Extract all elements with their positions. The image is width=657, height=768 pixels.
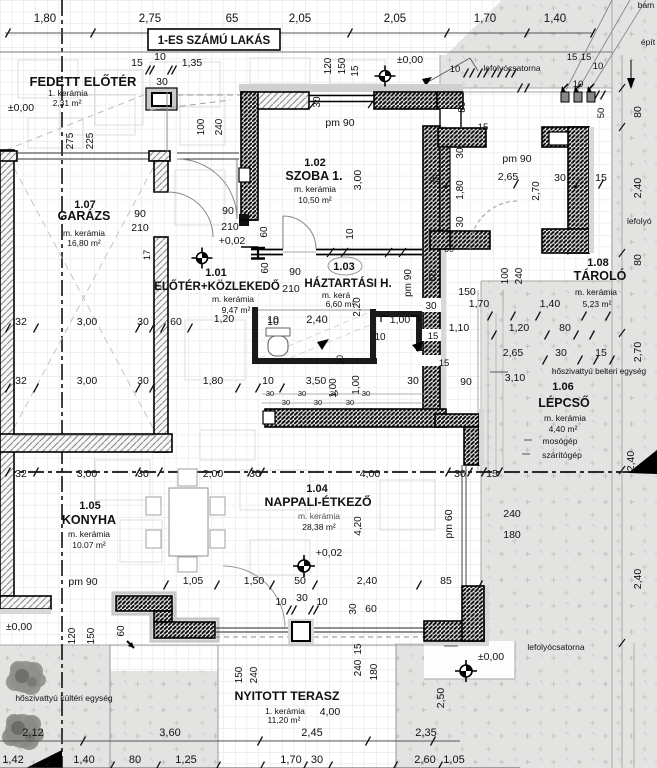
svg-text:10: 10 xyxy=(450,64,461,75)
svg-text:3,10: 3,10 xyxy=(505,372,526,384)
svg-text:210: 210 xyxy=(221,221,239,233)
svg-text:90: 90 xyxy=(289,266,301,278)
svg-text:mosógép: mosógép xyxy=(543,436,578,446)
svg-text:15: 15 xyxy=(439,358,450,369)
svg-text:2,40: 2,40 xyxy=(632,178,644,199)
svg-text:1,80: 1,80 xyxy=(34,13,56,25)
svg-text:1,80: 1,80 xyxy=(203,375,224,387)
svg-text:hőszivattyú kültéri egység: hőszivattyú kültéri egység xyxy=(15,693,113,703)
svg-text:3,00: 3,00 xyxy=(77,468,98,480)
svg-text:lefolyó: lefolyó xyxy=(627,216,652,226)
svg-text:1.08: 1.08 xyxy=(587,257,608,269)
svg-text:1,00: 1,00 xyxy=(390,314,411,326)
svg-text:30: 30 xyxy=(454,468,466,480)
svg-text:240: 240 xyxy=(353,659,364,676)
svg-text:80: 80 xyxy=(457,101,468,113)
svg-text:15: 15 xyxy=(486,468,498,480)
svg-text:+0,02: +0,02 xyxy=(316,547,343,559)
svg-text:60: 60 xyxy=(428,270,439,282)
svg-text:1,70: 1,70 xyxy=(474,13,496,25)
svg-text:30: 30 xyxy=(455,216,466,228)
svg-text:2,05: 2,05 xyxy=(289,13,311,25)
svg-text:240: 240 xyxy=(514,267,525,284)
svg-text:90: 90 xyxy=(460,376,472,388)
svg-text:30: 30 xyxy=(346,398,354,407)
svg-text:3,50: 3,50 xyxy=(306,375,327,387)
svg-text:65: 65 xyxy=(226,13,239,25)
svg-text:2,31 m²: 2,31 m² xyxy=(53,98,82,108)
svg-text:90: 90 xyxy=(222,205,234,217)
svg-text:15: 15 xyxy=(581,52,592,63)
svg-text:15: 15 xyxy=(353,643,364,655)
svg-text:lefolyócsatorna: lefolyócsatorna xyxy=(483,63,540,73)
svg-text:2,35: 2,35 xyxy=(415,727,436,739)
svg-text:1,42: 1,42 xyxy=(2,754,23,766)
svg-text:17: 17 xyxy=(142,250,153,261)
svg-text:150: 150 xyxy=(458,286,476,298)
svg-text:30: 30 xyxy=(362,389,370,398)
svg-text:1,40: 1,40 xyxy=(544,13,566,25)
svg-text:2,60: 2,60 xyxy=(414,754,435,766)
svg-text:2,12: 2,12 xyxy=(22,727,43,739)
svg-text:60: 60 xyxy=(260,262,271,274)
svg-text:80: 80 xyxy=(559,322,571,334)
svg-text:2,05: 2,05 xyxy=(384,13,406,25)
svg-text:30: 30 xyxy=(156,76,168,88)
svg-text:2,00: 2,00 xyxy=(203,468,224,480)
svg-text:KONYHA: KONYHA xyxy=(62,513,116,527)
svg-text:3,60: 3,60 xyxy=(159,727,180,739)
svg-text:10: 10 xyxy=(154,51,166,63)
svg-text:30: 30 xyxy=(312,96,323,108)
svg-text:30: 30 xyxy=(330,389,338,398)
svg-text:1,50: 1,50 xyxy=(244,575,265,587)
svg-text:50: 50 xyxy=(294,575,306,587)
svg-text:szárítógép: szárítógép xyxy=(542,450,582,460)
svg-text:80: 80 xyxy=(632,106,644,118)
svg-text:m. kerámia: m. kerámia xyxy=(63,228,105,238)
svg-text:28,38 m²: 28,38 m² xyxy=(302,522,336,532)
svg-text:15: 15 xyxy=(350,65,361,77)
svg-text:1.02: 1.02 xyxy=(304,157,325,169)
svg-text:3,00: 3,00 xyxy=(77,375,98,387)
svg-text:1,40: 1,40 xyxy=(540,298,561,310)
svg-text:2,50: 2,50 xyxy=(435,688,447,709)
svg-text:1,80: 1,80 xyxy=(455,180,466,200)
svg-text:10: 10 xyxy=(275,597,287,608)
svg-text:15: 15 xyxy=(131,57,143,69)
svg-text:210: 210 xyxy=(282,283,300,295)
svg-text:10.07 m²: 10.07 m² xyxy=(72,540,106,550)
svg-text:32: 32 xyxy=(15,375,27,387)
svg-text:2,75: 2,75 xyxy=(139,13,161,25)
svg-text:3,00: 3,00 xyxy=(352,170,364,191)
svg-text:ELŐTÉR+KÖZLEKEDŐ: ELŐTÉR+KÖZLEKEDŐ xyxy=(154,280,280,293)
svg-text:4,00: 4,00 xyxy=(360,468,381,480)
svg-text:240: 240 xyxy=(214,118,225,135)
svg-text:10: 10 xyxy=(573,79,584,90)
svg-text:60: 60 xyxy=(259,226,270,238)
svg-text:120: 120 xyxy=(67,627,78,644)
svg-text:30: 30 xyxy=(425,301,437,312)
svg-text:15: 15 xyxy=(595,172,607,184)
svg-text:+0,02: +0,02 xyxy=(219,235,246,247)
svg-text:±0,00: ±0,00 xyxy=(6,621,32,633)
svg-text:±0,00: ±0,00 xyxy=(478,651,504,663)
svg-text:10: 10 xyxy=(335,355,345,365)
svg-text:10,50 m²: 10,50 m² xyxy=(298,195,332,205)
svg-text:30: 30 xyxy=(407,375,419,387)
svg-text:275: 275 xyxy=(65,132,76,149)
svg-text:pm 90: pm 90 xyxy=(502,153,531,165)
svg-text:15: 15 xyxy=(428,331,439,342)
svg-text:1,20: 1,20 xyxy=(214,313,235,325)
svg-text:32: 32 xyxy=(15,468,27,480)
svg-text:4,40 m²: 4,40 m² xyxy=(549,424,578,434)
svg-text:60: 60 xyxy=(365,603,377,615)
svg-text:1,40: 1,40 xyxy=(73,754,94,766)
svg-text:30: 30 xyxy=(266,389,274,398)
svg-text:60: 60 xyxy=(170,316,182,328)
svg-text:1-ES SZÁMÚ LAKÁS: 1-ES SZÁMÚ LAKÁS xyxy=(158,34,271,47)
svg-text:1,25: 1,25 xyxy=(175,754,196,766)
svg-text:32: 32 xyxy=(15,316,27,328)
svg-text:1.06: 1.06 xyxy=(552,381,573,393)
svg-text:180: 180 xyxy=(503,529,521,541)
svg-text:2,70: 2,70 xyxy=(632,342,644,363)
svg-text:±0,00: ±0,00 xyxy=(8,102,34,114)
svg-text:210: 210 xyxy=(131,222,149,234)
svg-text:100: 100 xyxy=(196,118,207,135)
svg-text:30: 30 xyxy=(298,389,306,398)
svg-text:pm 90: pm 90 xyxy=(68,576,97,588)
svg-text:LÉPCSŐ: LÉPCSŐ xyxy=(538,395,590,410)
svg-text:1,05: 1,05 xyxy=(443,754,464,766)
svg-text:m. kerámia: m. kerámia xyxy=(294,184,336,194)
svg-text:180: 180 xyxy=(369,663,380,680)
svg-text:30: 30 xyxy=(314,398,322,407)
svg-text:épít: épít xyxy=(641,37,656,47)
svg-text:5,23 m²: 5,23 m² xyxy=(583,299,612,309)
svg-text:85: 85 xyxy=(440,575,452,587)
svg-text:2,70: 2,70 xyxy=(531,181,542,201)
svg-text:4,00: 4,00 xyxy=(320,706,341,718)
svg-text:30: 30 xyxy=(311,754,323,766)
svg-text:m. kerámia: m. kerámia xyxy=(212,294,254,304)
svg-text:10: 10 xyxy=(267,316,279,328)
svg-text:NAPPALI-ÉTKEZŐ: NAPPALI-ÉTKEZŐ xyxy=(264,494,371,509)
svg-text:m. kerámia: m. kerámia xyxy=(298,511,340,521)
svg-text:1,70: 1,70 xyxy=(469,298,490,310)
svg-text:1,35: 1,35 xyxy=(182,57,203,69)
svg-text:16,80 m²: 16,80 m² xyxy=(67,238,101,248)
svg-text:45: 45 xyxy=(429,173,441,185)
svg-text:2,40: 2,40 xyxy=(306,314,327,326)
svg-text:3,00: 3,00 xyxy=(77,316,98,328)
svg-text:1.05: 1.05 xyxy=(79,500,100,512)
svg-text:4,20: 4,20 xyxy=(353,516,364,536)
svg-text:±0,00: ±0,00 xyxy=(397,54,423,66)
svg-text:1. kerámia: 1. kerámia xyxy=(48,88,88,98)
svg-text:1,05: 1,05 xyxy=(183,575,204,587)
svg-text:30: 30 xyxy=(282,398,290,407)
svg-text:150: 150 xyxy=(337,57,348,74)
svg-text:225: 225 xyxy=(85,132,96,149)
svg-text:2,40: 2,40 xyxy=(625,451,637,472)
svg-text:10: 10 xyxy=(374,332,386,343)
svg-text:FEDETT ELŐTÉR: FEDETT ELŐTÉR xyxy=(30,74,138,89)
svg-text:2,65: 2,65 xyxy=(503,347,524,359)
svg-text:1,00: 1,00 xyxy=(351,375,362,395)
svg-text:NYITOTT TERASZ: NYITOTT TERASZ xyxy=(235,689,340,703)
svg-text:11,20 m²: 11,20 m² xyxy=(268,715,301,725)
svg-text:2,45: 2,45 xyxy=(301,727,322,739)
svg-text:2,20: 2,20 xyxy=(352,297,363,317)
svg-text:6,60 m²: 6,60 m² xyxy=(326,299,355,309)
svg-text:1,70: 1,70 xyxy=(280,754,301,766)
svg-text:TÁROLÓ: TÁROLÓ xyxy=(574,268,627,283)
svg-text:pm 90: pm 90 xyxy=(403,269,414,297)
svg-text:m. kerámia: m. kerámia xyxy=(575,287,617,297)
svg-text:2,65: 2,65 xyxy=(498,171,519,183)
svg-text:SZOBA 1.: SZOBA 1. xyxy=(285,169,342,183)
svg-text:100: 100 xyxy=(500,267,511,284)
svg-text:1.01: 1.01 xyxy=(205,267,226,279)
svg-text:80: 80 xyxy=(632,254,644,266)
svg-text:60: 60 xyxy=(116,625,127,637)
svg-text:150: 150 xyxy=(86,627,97,644)
svg-text:pm 60: pm 60 xyxy=(443,509,455,538)
svg-text:30: 30 xyxy=(296,592,308,604)
svg-text:lefolyócsatorna: lefolyócsatorna xyxy=(527,642,584,652)
svg-text:GARÁZS: GARÁZS xyxy=(58,208,111,223)
svg-text:HÁZTARTÁSI H.: HÁZTARTÁSI H. xyxy=(304,277,391,290)
svg-text:240: 240 xyxy=(503,508,521,520)
svg-text:30: 30 xyxy=(555,347,567,359)
svg-text:30: 30 xyxy=(348,603,359,615)
svg-text:1.04: 1.04 xyxy=(306,483,328,495)
svg-text:1,10: 1,10 xyxy=(449,322,470,334)
svg-text:240: 240 xyxy=(249,666,260,683)
svg-text:30: 30 xyxy=(554,172,566,184)
svg-text:bam: bam xyxy=(638,0,655,10)
svg-text:2,40: 2,40 xyxy=(632,569,644,590)
svg-text:10: 10 xyxy=(345,228,356,240)
svg-text:hőszivattyú belteri egység: hőszivattyú belteri egység xyxy=(552,367,647,376)
svg-text:15: 15 xyxy=(567,52,578,63)
svg-text:m. kerámia: m. kerámia xyxy=(68,529,110,539)
svg-text:1,20: 1,20 xyxy=(509,322,530,334)
svg-text:pm 90: pm 90 xyxy=(325,117,354,129)
svg-text:15: 15 xyxy=(478,122,489,133)
svg-text:1.03: 1.03 xyxy=(333,261,354,273)
svg-text:150: 150 xyxy=(234,666,245,683)
svg-text:50: 50 xyxy=(596,108,607,119)
svg-text:30: 30 xyxy=(455,147,466,159)
svg-text:60: 60 xyxy=(444,244,454,254)
svg-text:10: 10 xyxy=(593,61,604,72)
svg-text:m. kerámia: m. kerámia xyxy=(544,413,586,423)
svg-text:2,40: 2,40 xyxy=(357,575,378,587)
svg-text:90: 90 xyxy=(134,208,146,220)
svg-text:80: 80 xyxy=(129,754,141,766)
svg-text:10: 10 xyxy=(262,375,274,387)
svg-text:120: 120 xyxy=(323,57,334,74)
